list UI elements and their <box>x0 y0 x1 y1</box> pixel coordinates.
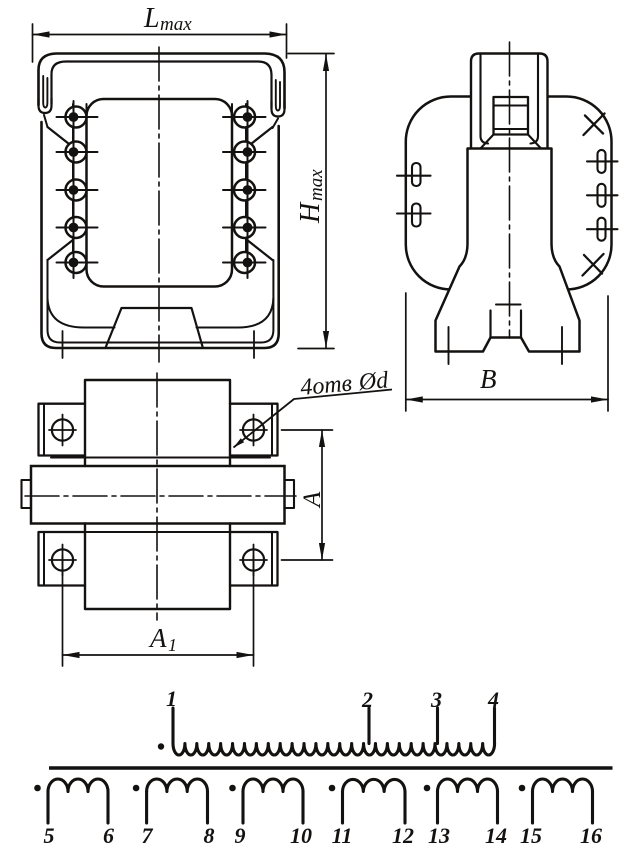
svg-text:7: 7 <box>142 823 154 848</box>
svg-text:6: 6 <box>103 823 114 848</box>
svg-text:16: 16 <box>580 823 602 848</box>
svg-text:L: L <box>143 3 160 34</box>
svg-text:3: 3 <box>430 687 442 712</box>
svg-text:A: A <box>299 491 326 509</box>
svg-text:H: H <box>295 201 326 224</box>
svg-text:1: 1 <box>166 686 177 711</box>
svg-text:A: A <box>148 623 167 653</box>
svg-text:14: 14 <box>485 823 507 848</box>
svg-text:5: 5 <box>44 823 55 848</box>
svg-text:9: 9 <box>235 823 246 848</box>
svg-text:12: 12 <box>392 823 414 848</box>
svg-text:15: 15 <box>520 823 542 848</box>
svg-text:8: 8 <box>204 823 215 848</box>
svg-text:2: 2 <box>361 687 373 712</box>
svg-text:11: 11 <box>332 823 353 848</box>
svg-text:1: 1 <box>168 635 177 655</box>
svg-text:10: 10 <box>290 823 312 848</box>
svg-text:13: 13 <box>428 823 450 848</box>
svg-text:4: 4 <box>487 687 499 712</box>
svg-text:max: max <box>160 14 192 35</box>
svg-text:B: B <box>480 364 497 394</box>
svg-text:max: max <box>306 169 327 201</box>
